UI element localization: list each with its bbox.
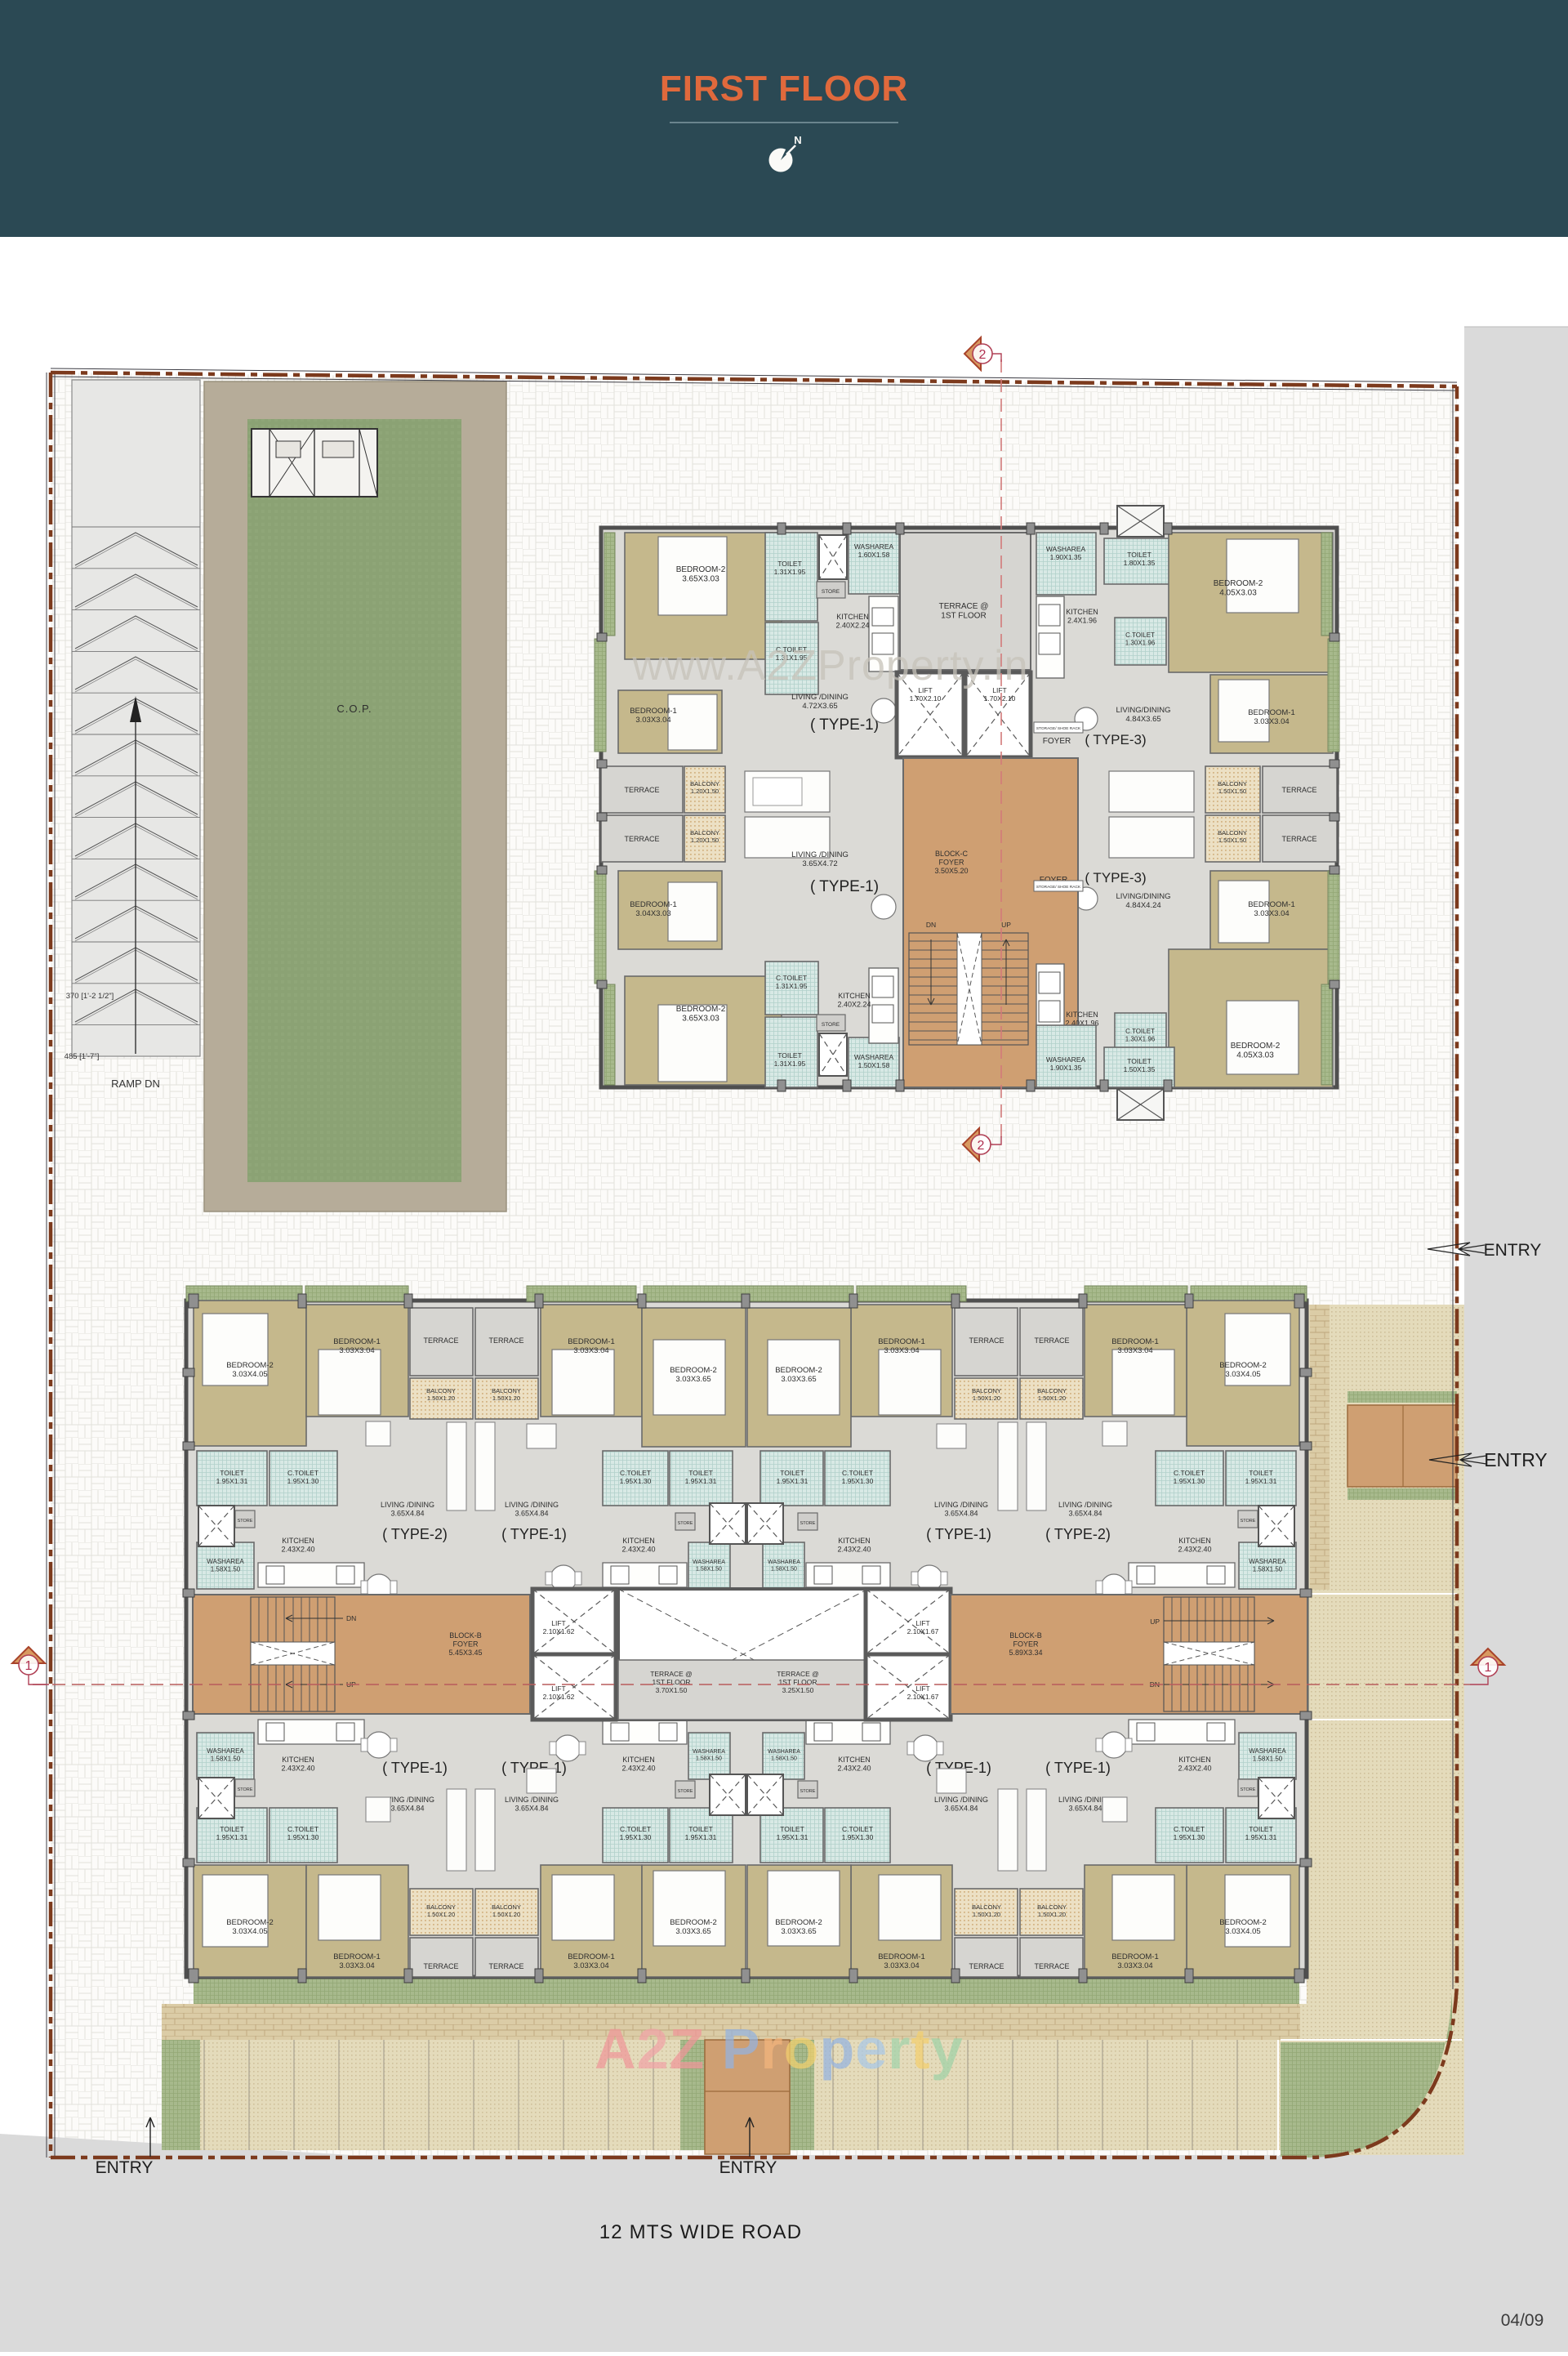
svg-text:TOILET1.95X1.31: TOILET1.95X1.31 bbox=[685, 1825, 717, 1841]
svg-text:BEDROOM-23.65X3.03: BEDROOM-23.65X3.03 bbox=[676, 1005, 726, 1024]
svg-text:C.TOILET1.95X1.30: C.TOILET1.95X1.30 bbox=[842, 1469, 874, 1485]
svg-text:WASHAREA1.58X1.50: WASHAREA1.58X1.50 bbox=[768, 1560, 800, 1573]
svg-text:TERRACE @1ST FLOOR3.70X1.50: TERRACE @1ST FLOOR3.70X1.50 bbox=[650, 1670, 693, 1694]
svg-text:BEDROOM-24.05X3.03: BEDROOM-24.05X3.03 bbox=[1231, 1042, 1281, 1060]
svg-text:C.TOILET1.30X1.96: C.TOILET1.30X1.96 bbox=[1125, 631, 1156, 647]
svg-text:2: 2 bbox=[978, 1139, 985, 1153]
svg-text:N: N bbox=[794, 134, 801, 146]
svg-text:FIRST FLOOR: FIRST FLOOR bbox=[660, 69, 908, 109]
svg-text:TERRACE: TERRACE bbox=[488, 1336, 523, 1345]
svg-text:STORAGE/ SHOE RACK: STORAGE/ SHOE RACK bbox=[1036, 726, 1081, 731]
svg-text:BEDROOM-13.03X3.04: BEDROOM-13.03X3.04 bbox=[333, 1952, 381, 1970]
svg-text:WASHAREA1.90X1.35: WASHAREA1.90X1.35 bbox=[1046, 1055, 1086, 1072]
svg-text:KITCHEN2.43X2.40: KITCHEN2.43X2.40 bbox=[281, 1537, 314, 1554]
svg-text:STORE: STORE bbox=[822, 589, 840, 595]
svg-text:TOILET1.50X1.35: TOILET1.50X1.35 bbox=[1124, 1057, 1156, 1073]
svg-text:( TYPE-3): ( TYPE-3) bbox=[1085, 870, 1146, 886]
svg-text:WASHAREA1.58X1.50: WASHAREA1.58X1.50 bbox=[768, 1749, 800, 1762]
svg-text:TOILET1.95X1.31: TOILET1.95X1.31 bbox=[777, 1469, 808, 1485]
svg-text:BEDROOM-24.05X3.03: BEDROOM-24.05X3.03 bbox=[1214, 579, 1263, 598]
svg-text:STORE: STORE bbox=[238, 1519, 253, 1524]
svg-text:C.TOILET1.95X1.30: C.TOILET1.95X1.30 bbox=[842, 1825, 874, 1841]
svg-text:12 MTS WIDE ROAD: 12 MTS WIDE ROAD bbox=[599, 2221, 803, 2243]
svg-text:BEDROOM-13.03X3.04: BEDROOM-13.03X3.04 bbox=[878, 1337, 925, 1355]
svg-text:( TYPE-1): ( TYPE-1) bbox=[926, 1526, 991, 1542]
svg-text:KITCHEN2.43X2.40: KITCHEN2.43X2.40 bbox=[621, 1756, 655, 1773]
svg-text:KITCHEN2.43X2.40: KITCHEN2.43X2.40 bbox=[837, 1756, 871, 1773]
svg-text:www.A2ZProperty.in: www.A2ZProperty.in bbox=[631, 642, 1028, 689]
svg-text:STORE: STORE bbox=[800, 1789, 816, 1794]
svg-text:A2Z Property: A2Z Property bbox=[595, 2017, 964, 2081]
svg-text:BEDROOM-23.03X4.05: BEDROOM-23.03X4.05 bbox=[1219, 1918, 1267, 1936]
svg-text:BEDROOM-13.03X3.04: BEDROOM-13.03X3.04 bbox=[333, 1337, 381, 1355]
svg-text:BEDROOM-13.03X3.04: BEDROOM-13.03X3.04 bbox=[1248, 900, 1295, 918]
svg-text:STORE: STORE bbox=[238, 1787, 253, 1792]
svg-text:BALCONY1.50X1.20: BALCONY1.50X1.20 bbox=[426, 1387, 456, 1402]
svg-text:ENTRY: ENTRY bbox=[1484, 1241, 1542, 1260]
svg-text:( TYPE-2): ( TYPE-2) bbox=[382, 1526, 448, 1542]
svg-text:TOILET1.95X1.31: TOILET1.95X1.31 bbox=[1245, 1469, 1277, 1485]
svg-text:BALCONY1.50X1.20: BALCONY1.50X1.20 bbox=[492, 1387, 521, 1402]
svg-text:( TYPE-1): ( TYPE-1) bbox=[501, 1526, 567, 1542]
svg-text:TERRACE: TERRACE bbox=[488, 1962, 523, 1970]
svg-text:C.O.P.: C.O.P. bbox=[336, 703, 372, 715]
svg-text:UP: UP bbox=[1001, 921, 1011, 929]
svg-text:TERRACE: TERRACE bbox=[1281, 835, 1316, 843]
svg-text:TOILET1.95X1.31: TOILET1.95X1.31 bbox=[777, 1825, 808, 1841]
svg-text:KITCHEN2.43X2.40: KITCHEN2.43X2.40 bbox=[1178, 1756, 1211, 1773]
svg-text:WASHAREA1.50X1.58: WASHAREA1.50X1.58 bbox=[854, 1053, 894, 1069]
svg-text:WASHAREA1.58X1.50: WASHAREA1.58X1.50 bbox=[1249, 1558, 1286, 1573]
svg-text:C.TOILET1.95X1.30: C.TOILET1.95X1.30 bbox=[287, 1825, 319, 1841]
svg-text:STORE: STORE bbox=[678, 1521, 693, 1526]
svg-text:TERRACE: TERRACE bbox=[624, 835, 659, 843]
svg-text:TOILET1.80X1.35: TOILET1.80X1.35 bbox=[1124, 551, 1156, 567]
svg-text:RAMP DN: RAMP DN bbox=[111, 1078, 160, 1090]
svg-text:UP: UP bbox=[1150, 1618, 1160, 1626]
svg-text:BALCONY1.20X1.50: BALCONY1.20X1.50 bbox=[690, 829, 719, 844]
svg-text:ENTRY: ENTRY bbox=[1484, 1449, 1548, 1470]
svg-text:STORAGE/ SHOE RACK: STORAGE/ SHOE RACK bbox=[1036, 885, 1081, 890]
svg-text:KITCHEN2.4X1.96: KITCHEN2.4X1.96 bbox=[1066, 608, 1098, 625]
svg-text:STORE: STORE bbox=[800, 1521, 816, 1526]
svg-text:BALCONY1.50X1.20: BALCONY1.50X1.20 bbox=[426, 1903, 456, 1918]
svg-text:FOYER: FOYER bbox=[1043, 737, 1071, 746]
svg-text:TERRACE: TERRACE bbox=[624, 786, 659, 794]
svg-text:TOILET1.31X1.95: TOILET1.31X1.95 bbox=[774, 1051, 806, 1068]
svg-text:( TYPE-2): ( TYPE-2) bbox=[1045, 1526, 1111, 1542]
svg-text:BEDROOM-23.03X3.65: BEDROOM-23.03X3.65 bbox=[670, 1366, 717, 1384]
svg-text:2: 2 bbox=[979, 348, 987, 362]
svg-text:( TYPE-1): ( TYPE-1) bbox=[810, 716, 879, 734]
svg-text:DN: DN bbox=[926, 921, 936, 929]
svg-text:TOILET1.95X1.31: TOILET1.95X1.31 bbox=[685, 1469, 717, 1485]
svg-text:BLOCK-BFOYER5.45X3.45: BLOCK-BFOYER5.45X3.45 bbox=[448, 1631, 482, 1657]
svg-text:KITCHEN2.43X2.40: KITCHEN2.43X2.40 bbox=[1178, 1537, 1211, 1554]
svg-text:BEDROOM-13.03X3.04: BEDROOM-13.03X3.04 bbox=[568, 1337, 615, 1355]
svg-text:C.TOILET1.30X1.96: C.TOILET1.30X1.96 bbox=[1125, 1028, 1156, 1043]
svg-text:TERRACE @1ST FLOOR3.25X1.50: TERRACE @1ST FLOOR3.25X1.50 bbox=[777, 1670, 819, 1694]
svg-text:BALCONY1.50X1.20: BALCONY1.50X1.20 bbox=[492, 1903, 521, 1918]
svg-text:TERRACE: TERRACE bbox=[1034, 1336, 1069, 1345]
svg-text:TOILET1.95X1.31: TOILET1.95X1.31 bbox=[216, 1825, 248, 1841]
svg-text:( TYPE-1): ( TYPE-1) bbox=[1045, 1760, 1111, 1776]
svg-text:BEDROOM-13.03X3.04: BEDROOM-13.03X3.04 bbox=[630, 707, 677, 725]
svg-text:DN: DN bbox=[346, 1614, 356, 1622]
svg-text:TOILET1.95X1.31: TOILET1.95X1.31 bbox=[1245, 1825, 1277, 1841]
svg-text:TERRACE: TERRACE bbox=[423, 1962, 458, 1970]
svg-text:KITCHEN2.43X2.40: KITCHEN2.43X2.40 bbox=[281, 1756, 314, 1773]
svg-text:TERRACE: TERRACE bbox=[969, 1962, 1004, 1970]
svg-text:WASHAREA1.58X1.50: WASHAREA1.58X1.50 bbox=[693, 1749, 725, 1762]
svg-text:KITCHEN2.40X2.24: KITCHEN2.40X2.24 bbox=[835, 613, 869, 630]
svg-text:C.TOILET1.95X1.30: C.TOILET1.95X1.30 bbox=[1174, 1469, 1205, 1485]
svg-text:TERRACE: TERRACE bbox=[1281, 786, 1316, 794]
svg-text:TOILET1.31X1.95: TOILET1.31X1.95 bbox=[774, 560, 806, 576]
svg-text:BEDROOM-13.03X3.04: BEDROOM-13.03X3.04 bbox=[878, 1952, 925, 1970]
svg-text:WASHAREA1.60X1.58: WASHAREA1.60X1.58 bbox=[854, 542, 894, 559]
svg-text:BEDROOM-23.03X3.65: BEDROOM-23.03X3.65 bbox=[775, 1918, 822, 1936]
svg-text:WASHAREA1.58X1.50: WASHAREA1.58X1.50 bbox=[1249, 1747, 1286, 1763]
svg-text:BEDROOM-13.03X3.04: BEDROOM-13.03X3.04 bbox=[1111, 1337, 1159, 1355]
svg-text:BEDROOM-13.03X3.04: BEDROOM-13.03X3.04 bbox=[568, 1952, 615, 1970]
svg-text:BEDROOM-13.04X3.03: BEDROOM-13.04X3.03 bbox=[630, 900, 677, 918]
svg-text:BEDROOM-23.03X4.05: BEDROOM-23.03X4.05 bbox=[1219, 1361, 1267, 1379]
svg-text:BALCONY1.50X1.20: BALCONY1.50X1.20 bbox=[972, 1387, 1001, 1402]
svg-text:BEDROOM-13.03X3.04: BEDROOM-13.03X3.04 bbox=[1111, 1952, 1159, 1970]
svg-text:KITCHEN2.43X2.40: KITCHEN2.43X2.40 bbox=[837, 1537, 871, 1554]
svg-text:C.TOILET1.95X1.30: C.TOILET1.95X1.30 bbox=[620, 1825, 652, 1841]
svg-text:BEDROOM-23.03X3.65: BEDROOM-23.03X3.65 bbox=[775, 1366, 822, 1384]
svg-text:C.TOILET1.95X1.30: C.TOILET1.95X1.30 bbox=[620, 1469, 652, 1485]
svg-text:370 [1'-2 1/2"]: 370 [1'-2 1/2"] bbox=[66, 992, 114, 1001]
svg-text:1: 1 bbox=[1485, 1661, 1492, 1675]
svg-text:BALCONY1.50X1.20: BALCONY1.50X1.20 bbox=[1037, 1387, 1067, 1402]
svg-text:STORE: STORE bbox=[822, 1022, 840, 1028]
svg-text:BEDROOM-23.03X4.05: BEDROOM-23.03X4.05 bbox=[226, 1918, 274, 1936]
svg-text:C.TOILET1.95X1.30: C.TOILET1.95X1.30 bbox=[1174, 1825, 1205, 1841]
svg-text:WASHAREA1.90X1.35: WASHAREA1.90X1.35 bbox=[1046, 545, 1086, 561]
svg-text:TERRACE @1ST FLOOR: TERRACE @1ST FLOOR bbox=[939, 602, 989, 621]
svg-text:KITCHEN2.40X2.24: KITCHEN2.40X2.24 bbox=[837, 992, 871, 1009]
svg-text:BEDROOM-23.03X4.05: BEDROOM-23.03X4.05 bbox=[226, 1361, 274, 1379]
svg-text:BLOCK-BFOYER5.89X3.34: BLOCK-BFOYER5.89X3.34 bbox=[1009, 1631, 1042, 1657]
svg-text:BEDROOM-13.03X3.04: BEDROOM-13.03X3.04 bbox=[1248, 708, 1295, 726]
svg-text:KITCHEN2.43X2.40: KITCHEN2.43X2.40 bbox=[621, 1537, 655, 1554]
svg-text:ENTRY: ENTRY bbox=[96, 2158, 154, 2177]
svg-text:BALCONY1.50X1.50: BALCONY1.50X1.50 bbox=[1218, 829, 1247, 844]
svg-text:WASHAREA1.58X1.50: WASHAREA1.58X1.50 bbox=[207, 1747, 244, 1763]
svg-text:STORE: STORE bbox=[1241, 1787, 1256, 1792]
svg-text:TOILET1.95X1.31: TOILET1.95X1.31 bbox=[216, 1469, 248, 1485]
svg-text:WASHAREA1.58X1.50: WASHAREA1.58X1.50 bbox=[207, 1558, 244, 1573]
svg-text:( TYPE-1): ( TYPE-1) bbox=[810, 878, 879, 895]
svg-text:1: 1 bbox=[25, 1659, 33, 1673]
svg-text:TERRACE: TERRACE bbox=[423, 1336, 458, 1345]
svg-text:BEDROOM-23.03X3.65: BEDROOM-23.03X3.65 bbox=[670, 1918, 717, 1936]
svg-text:STORE: STORE bbox=[678, 1789, 693, 1794]
svg-text:( TYPE-1): ( TYPE-1) bbox=[382, 1760, 448, 1776]
svg-text:BALCONY1.20X1.50: BALCONY1.20X1.50 bbox=[690, 780, 719, 795]
svg-text:BLOCK-CFOYER3.50X5.20: BLOCK-CFOYER3.50X5.20 bbox=[934, 850, 968, 875]
svg-text:BEDROOM-23.65X3.03: BEDROOM-23.65X3.03 bbox=[676, 565, 726, 584]
svg-text:TERRACE: TERRACE bbox=[1034, 1962, 1069, 1970]
svg-text:STORE: STORE bbox=[1241, 1519, 1256, 1524]
svg-text:WASHAREA1.58X1.50: WASHAREA1.58X1.50 bbox=[693, 1560, 725, 1573]
svg-text:485 [1'-7"]: 485 [1'-7"] bbox=[65, 1052, 100, 1061]
svg-text:BALCONY1.50X1.20: BALCONY1.50X1.20 bbox=[1037, 1903, 1067, 1918]
svg-text:C.TOILET1.31X1.95: C.TOILET1.31X1.95 bbox=[776, 974, 808, 990]
svg-text:( TYPE-3): ( TYPE-3) bbox=[1085, 732, 1146, 747]
svg-text:04/09: 04/09 bbox=[1501, 2311, 1544, 2330]
svg-text:TERRACE: TERRACE bbox=[969, 1336, 1004, 1345]
svg-text:BALCONY1.50X1.50: BALCONY1.50X1.50 bbox=[1218, 780, 1247, 795]
svg-text:BALCONY1.50X1.20: BALCONY1.50X1.20 bbox=[972, 1903, 1001, 1918]
svg-text:C.TOILET1.95X1.30: C.TOILET1.95X1.30 bbox=[287, 1469, 319, 1485]
svg-text:ENTRY: ENTRY bbox=[719, 2158, 777, 2177]
